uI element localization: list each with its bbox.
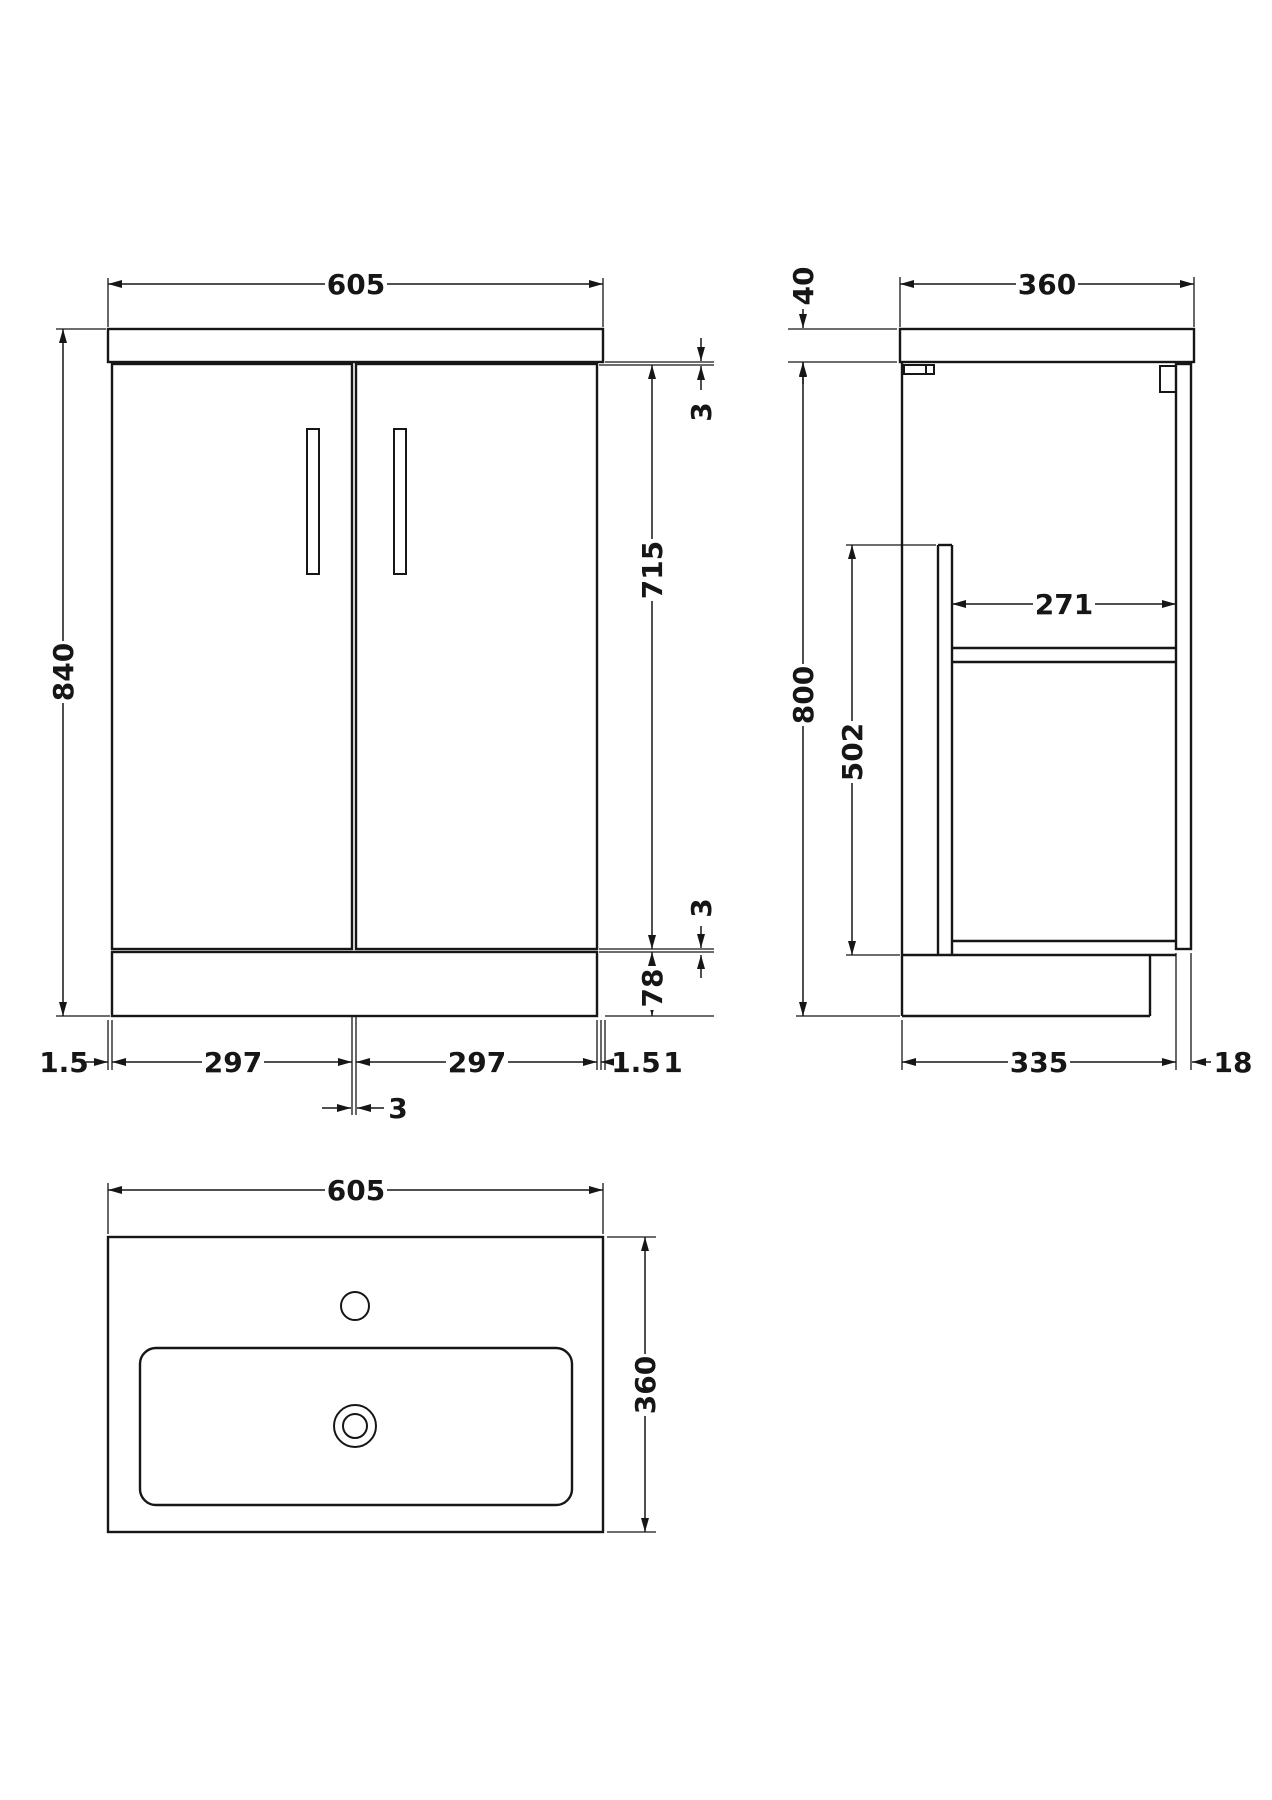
basin-outline: [108, 1237, 603, 1532]
right-door-handle: [394, 429, 406, 574]
dim-plan-basin-width: 605: [327, 1174, 385, 1207]
front-plinth: [112, 952, 597, 1016]
dim-front-left-door-width: 297: [204, 1046, 262, 1079]
plan-view: 605 360: [108, 1174, 662, 1532]
side-worktop: [900, 329, 1194, 362]
faucet-hole: [341, 1292, 369, 1320]
dim-side-opening-height: 502: [836, 723, 869, 781]
dim-front-overall-height: 840: [47, 643, 80, 701]
dim-side-cabinet-height: 800: [787, 666, 820, 724]
technical-drawing-canvas: 605 840 3 715 3 78: [0, 0, 1272, 1800]
front-left-door: [112, 364, 352, 949]
basin-bowl: [140, 1348, 572, 1505]
dim-side-top-depth: 360: [1018, 268, 1076, 301]
dim-front-top-gap: 3: [685, 402, 718, 421]
dim-plan-basin-depth: 360: [629, 1356, 662, 1414]
dim-front-right-door-width: 297: [448, 1046, 506, 1079]
dim-front-bottom-right-gap: 1.5: [611, 1046, 661, 1079]
dim-side-shelf-depth: 271: [1035, 588, 1093, 621]
drain-outer: [334, 1405, 376, 1447]
dim-front-bottom-right-offset: 1: [663, 1046, 682, 1079]
dim-side-base-depth: 335: [1010, 1046, 1068, 1079]
side-view: 360 40 800 502 271 335 18: [787, 265, 1253, 1079]
drain-inner: [343, 1414, 367, 1438]
front-right-door: [356, 364, 597, 949]
dim-front-door-height: 715: [636, 541, 669, 599]
front-view: 605 840 3 715 3 78: [39, 268, 718, 1125]
dim-front-center-door-gap: 3: [388, 1092, 407, 1125]
dim-side-door-thickness: 18: [1214, 1046, 1253, 1079]
dim-side-worktop-thickness: 40: [787, 267, 820, 306]
dim-front-plinth-height: 78: [636, 969, 669, 1008]
wall-bracket: [904, 365, 934, 374]
dim-front-bottom-left-gap: 1.5: [39, 1046, 89, 1079]
drawing-svg: 605 840 3 715 3 78: [0, 0, 1272, 1800]
side-door-profile: [1176, 364, 1191, 949]
left-door-handle: [307, 429, 319, 574]
side-hinge-detail: [1160, 366, 1176, 392]
dim-front-bottom-gap: 3: [685, 898, 718, 917]
dim-front-top-width: 605: [327, 268, 385, 301]
front-worktop: [108, 329, 603, 362]
